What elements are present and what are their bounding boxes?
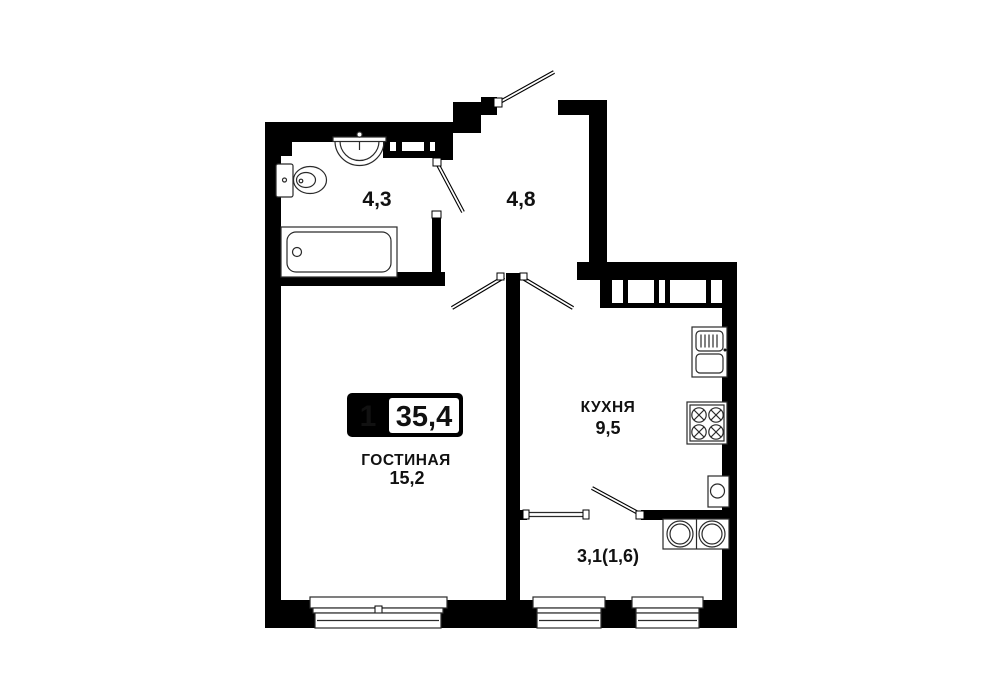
door-entrance [494, 72, 554, 107]
floor-plan: 1 35,4 4,3 4,8 КУХНЯ 9,5 ГОСТИНАЯ 15,2 3… [0, 0, 1006, 700]
kitchen-sink [692, 327, 727, 377]
door-bathroom [432, 158, 463, 218]
window-living-room [310, 597, 447, 628]
water-heater [708, 476, 729, 507]
wall-central-partition [506, 273, 520, 628]
vent-shaft-kitchen [600, 280, 722, 308]
bathroom-area-label: 4,3 [362, 188, 391, 211]
total-area-label: 35,4 [396, 401, 452, 433]
toilet [276, 164, 327, 197]
hallway-area-label: 4,8 [506, 188, 536, 211]
door-entrance-hinge [494, 98, 502, 107]
door-living-room [452, 273, 504, 308]
window-balcony-1 [533, 597, 605, 628]
balcony-unit [663, 519, 729, 549]
floor-plan-canvas: 1 35,4 4,3 4,8 КУХНЯ 9,5 ГОСТИНАЯ 15,2 3… [0, 0, 1006, 700]
wall-entry-right-vertical [589, 100, 607, 262]
wall-bathroom-column [277, 142, 292, 156]
wall-kitchen-top [589, 262, 737, 280]
wall-bathroom-door-stub [432, 218, 441, 272]
kitchen-name-label: КУХНЯ [581, 399, 636, 416]
wall-bathroom-corner [435, 122, 453, 160]
faucet-icon [357, 132, 362, 137]
wall-entry-step-mid [453, 102, 481, 133]
vent-shaft-bathroom [383, 142, 437, 158]
wall-entry-right-top [558, 100, 607, 115]
door-kitchen [520, 273, 573, 308]
wall-left [265, 122, 281, 628]
balcony-area-label: 3,1(1,6) [577, 546, 639, 566]
door-balcony [592, 488, 644, 519]
bathroom-sink [333, 132, 386, 166]
room-count-label: 1 [360, 400, 377, 433]
wall-right [722, 262, 737, 628]
wall-kitchen-door-nub [577, 262, 589, 280]
window-kitchen-balcony [523, 510, 589, 520]
living-area-label: 15,2 [389, 468, 424, 488]
living-name-label: ГОСТИНАЯ [361, 452, 451, 469]
stove [687, 402, 727, 444]
unit-badge: 1 35,4 [347, 393, 463, 437]
window-balcony-2 [632, 597, 703, 628]
bathtub [281, 227, 397, 277]
kitchen-area-label: 9,5 [595, 418, 620, 438]
